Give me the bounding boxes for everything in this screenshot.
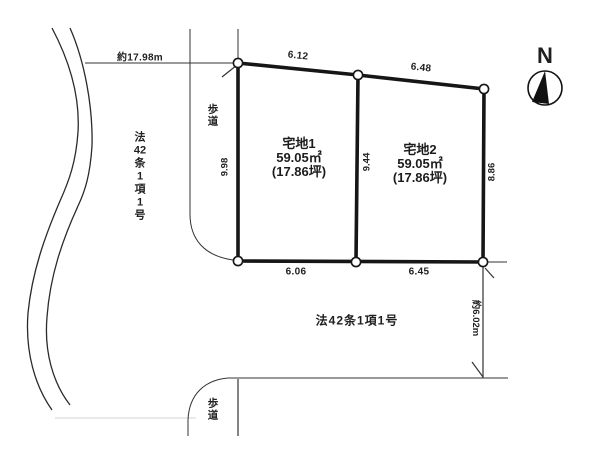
plot2-area-sqm: 59.05㎡	[393, 157, 447, 171]
plot1-name: 宅地1	[272, 137, 326, 151]
compass-icon	[528, 71, 562, 105]
left-road-char: 項	[135, 184, 146, 197]
left-road-char: 号	[135, 210, 146, 223]
curved-boundary-outer	[27, 28, 78, 410]
corner-marker	[233, 256, 242, 265]
sidewalk-char: 歩	[208, 105, 219, 117]
left-road-char: 法	[135, 132, 146, 145]
plot1-top-dimension: 6.12	[287, 49, 309, 62]
compass-needle	[532, 71, 549, 104]
dimension-tick-bottom-right-top	[485, 268, 494, 278]
plot2-top-dimension: 6.48	[410, 61, 432, 74]
plot1-label: 宅地1 59.05㎡ (17.86坪)	[272, 137, 326, 179]
sidewalk-char: 道	[208, 116, 219, 128]
divider-dimension: 9.44	[362, 153, 373, 172]
land-plot-diagram: 約17.98m 6.12 6.48 9.98 9.44 8.86 6.06 6.…	[0, 0, 600, 450]
corner-marker	[479, 84, 488, 93]
corner-marker	[353, 70, 362, 79]
sidewalk-char: 道	[208, 410, 219, 422]
corner-marker	[233, 58, 242, 67]
front-road-width-label: 約17.98m	[117, 49, 163, 64]
plot2-name: 宅地2	[393, 143, 447, 157]
plot2-label: 宅地2 59.05㎡ (17.86坪)	[393, 143, 447, 185]
plot2-bottom-dimension: 6.45	[409, 267, 430, 278]
bottom-road-designation: 法42条1項1号	[316, 312, 399, 329]
corner-marker	[478, 257, 487, 266]
side-road-width-label: 約6.02m	[470, 300, 484, 336]
sidewalk-top-boundary-line	[190, 29, 233, 260]
left-road-char: 1	[137, 171, 143, 184]
left-road-designation: 法 42 条 1 項 1 号	[134, 132, 146, 223]
corner-marker	[351, 257, 360, 266]
compass-north-label: N	[537, 43, 553, 69]
sidewalk-char: 歩	[208, 399, 219, 411]
plot1-area-sqm: 59.05㎡	[272, 151, 326, 165]
sidewalk-label-bottom: 歩 道	[208, 399, 219, 422]
plot1-area-tsubo: (17.86坪)	[272, 165, 326, 179]
plot1-bottom-dimension: 6.06	[286, 267, 307, 278]
dimension-tick-bottom-right-bottom	[472, 362, 483, 377]
left-road-char: 1	[137, 197, 143, 210]
plot2-right-dimension: 8.86	[487, 163, 498, 182]
plot-divider-line	[356, 75, 358, 262]
left-road-char: 42	[134, 145, 146, 158]
plot1-left-dimension: 9.98	[220, 158, 231, 177]
left-road-char: 条	[135, 158, 146, 171]
plot2-area-tsubo: (17.86坪)	[393, 171, 447, 185]
sidewalk-label-top: 歩 道	[208, 105, 219, 128]
survey-linework	[0, 0, 600, 450]
